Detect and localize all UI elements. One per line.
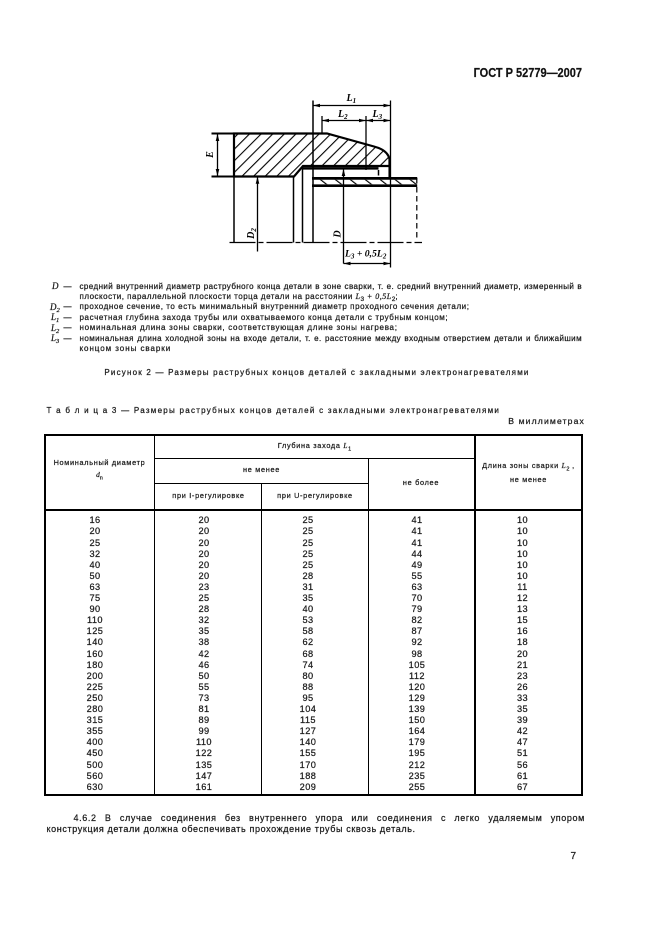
svg-text:D2: D2	[246, 228, 258, 240]
svg-text:D: D	[332, 230, 343, 238]
svg-text:L2: L2	[337, 109, 348, 121]
svg-text:L3 + 0,5L2: L3 + 0,5L2	[344, 249, 387, 261]
svg-text:L3: L3	[372, 109, 383, 121]
svg-text:E: E	[205, 151, 216, 159]
svg-text:L1: L1	[346, 93, 357, 105]
